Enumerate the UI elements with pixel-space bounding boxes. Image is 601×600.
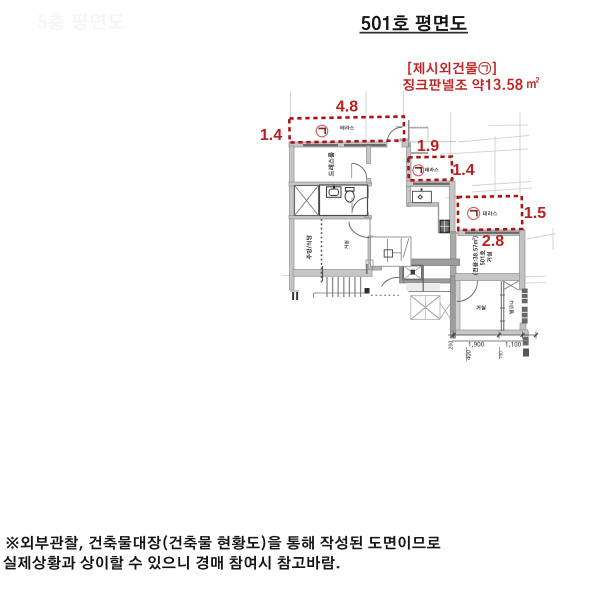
svg-text:1.4: 1.4 (260, 127, 282, 144)
svg-text:1.9: 1.9 (417, 138, 439, 155)
svg-text:2.8: 2.8 (482, 233, 504, 250)
svg-text:4.8: 4.8 (336, 99, 358, 116)
svg-text:1.4: 1.4 (452, 162, 474, 179)
svg-text:1.5: 1.5 (524, 205, 546, 222)
